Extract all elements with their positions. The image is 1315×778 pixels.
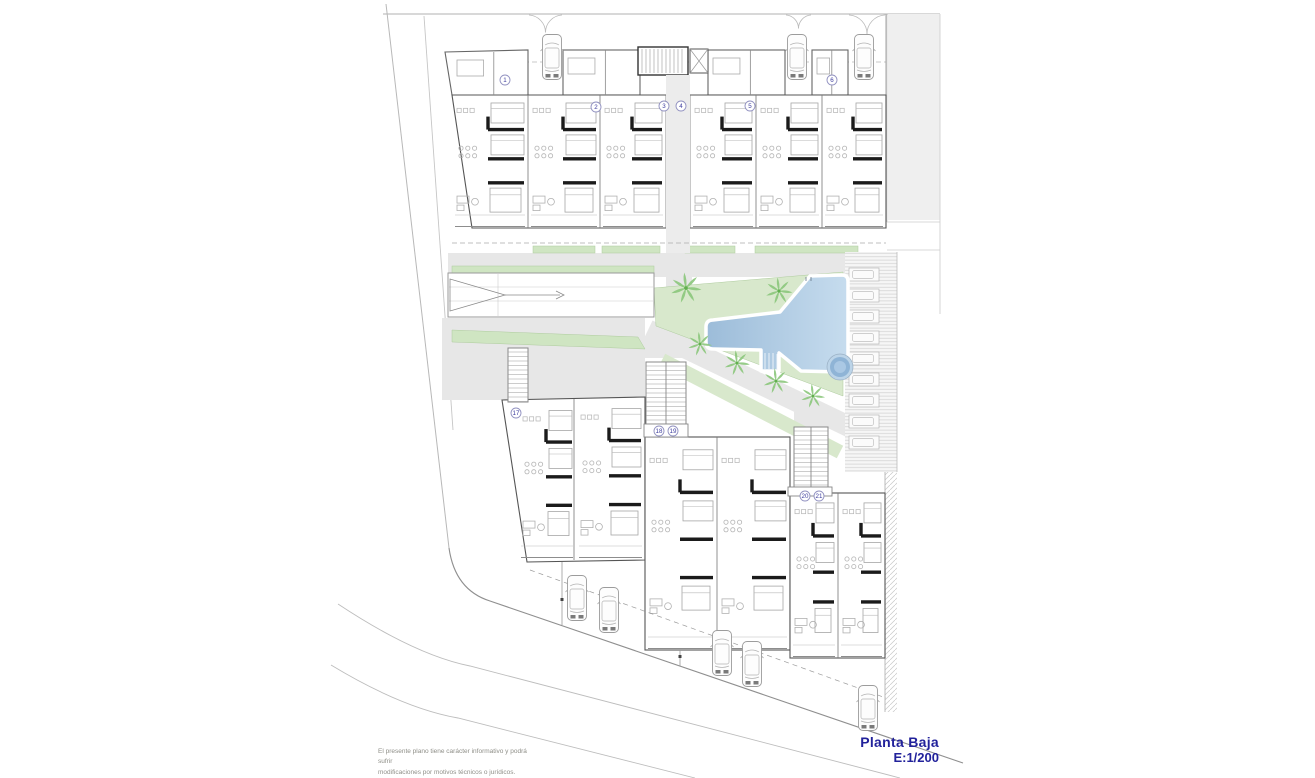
disclaimer-note: El presente plano tiene carácter informa…	[378, 747, 538, 778]
rear-wing	[563, 50, 640, 95]
svg-text:6: 6	[830, 77, 834, 84]
car-icon	[566, 576, 589, 621]
plan-title: Planta Baja	[860, 734, 939, 750]
car-icon	[857, 686, 880, 731]
rear-wing	[708, 50, 785, 95]
svg-text:19: 19	[670, 428, 677, 435]
svg-text:1: 1	[503, 77, 507, 84]
car-icon	[786, 35, 809, 80]
car-icon	[711, 631, 734, 676]
unit-number-badge: 17	[511, 408, 521, 418]
rear-wing	[812, 50, 848, 95]
site-plan-svg: 1234561718192021	[0, 0, 1315, 778]
unit-number-badge: 18	[654, 426, 664, 436]
svg-text:5: 5	[748, 103, 752, 110]
unit-number-badge: 5	[745, 101, 755, 111]
plan-scale: E:1/200	[860, 750, 939, 765]
stair-core-top	[638, 47, 708, 75]
svg-text:20: 20	[802, 493, 809, 500]
car-icon	[853, 35, 876, 80]
unit-number-badge: 20	[800, 491, 810, 501]
unit-number-badge: 1	[500, 75, 510, 85]
unit-number-badge: 19	[668, 426, 678, 436]
svg-text:4: 4	[679, 103, 683, 110]
car-icon	[741, 642, 764, 687]
parking-stalls	[849, 268, 879, 449]
spa-circle	[827, 354, 853, 380]
car-icon	[598, 588, 621, 633]
svg-text:3: 3	[662, 103, 666, 110]
unit-number-badge: 4	[676, 101, 686, 111]
unit-number-badge: 2	[591, 102, 601, 112]
unit-number-badge: 3	[659, 101, 669, 111]
disclaimer-line-2: modificaciones por motivos técnicos o ju…	[378, 768, 538, 778]
unit-number-badge: 6	[827, 75, 837, 85]
rear-wing	[445, 50, 528, 95]
garage-door-arcs	[529, 15, 885, 34]
svg-text:21: 21	[816, 493, 823, 500]
garage-ramp	[448, 273, 654, 317]
floor-plan-canvas: 1234561718192021 El presente plano tiene…	[0, 0, 1315, 778]
car-icon	[541, 35, 564, 80]
svg-text:17: 17	[513, 410, 520, 417]
plan-title-block: Planta Baja E:1/200	[860, 734, 939, 765]
top-building-block	[445, 14, 886, 253]
unit-number-badge: 21	[814, 491, 824, 501]
disclaimer-line-1: El presente plano tiene carácter informa…	[378, 747, 538, 768]
svg-text:18: 18	[656, 428, 663, 435]
svg-text:2: 2	[594, 104, 598, 111]
